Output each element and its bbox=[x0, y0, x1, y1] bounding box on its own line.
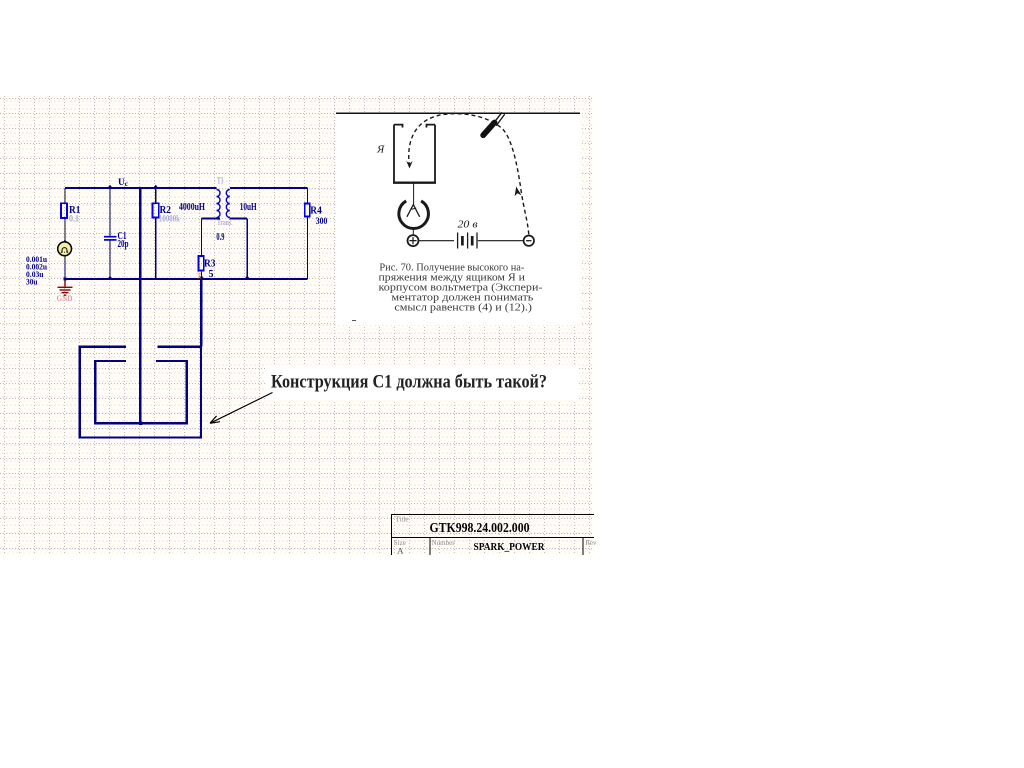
svg-text:Я: Я bbox=[376, 144, 385, 156]
svg-text:SPARK_POWER: SPARK_POWER bbox=[474, 542, 546, 553]
svg-text:Trans.: Trans. bbox=[217, 217, 233, 227]
svg-text:20p: 20p bbox=[118, 239, 129, 250]
svg-text:A: A bbox=[397, 546, 404, 556]
svg-text:Конструкция С1 должна быть: Конструкция С1 должна быть такой? bbox=[271, 372, 547, 393]
svg-text:5: 5 bbox=[209, 269, 214, 280]
svg-text:4000uH: 4000uH bbox=[179, 202, 205, 213]
svg-text:смысл равенств (4) и (12).): смысл равенств (4) и (12).) bbox=[394, 303, 532, 314]
svg-text:R4: R4 bbox=[310, 206, 322, 217]
svg-text:30u: 30u bbox=[26, 276, 38, 286]
svg-text:0.1: 0.1 bbox=[69, 214, 79, 224]
svg-text:Uc: Uc bbox=[118, 177, 129, 188]
svg-text:10uH: 10uH bbox=[240, 202, 257, 213]
svg-text:GND: GND bbox=[57, 293, 73, 303]
svg-text:GTK998.24.002.000: GTK998.24.002.000 bbox=[430, 520, 530, 535]
svg-text:Number: Number bbox=[432, 539, 456, 547]
svg-text:300: 300 bbox=[316, 217, 328, 227]
svg-text:T1: T1 bbox=[217, 176, 224, 186]
svg-text:Rev: Rev bbox=[585, 539, 597, 547]
svg-text:0.9: 0.9 bbox=[216, 232, 224, 243]
svg-text:Title: Title bbox=[396, 516, 409, 524]
svg-text:10000k: 10000k bbox=[159, 214, 180, 224]
svg-text:R3: R3 bbox=[204, 259, 216, 270]
svg-text:20 в: 20 в bbox=[458, 220, 478, 231]
